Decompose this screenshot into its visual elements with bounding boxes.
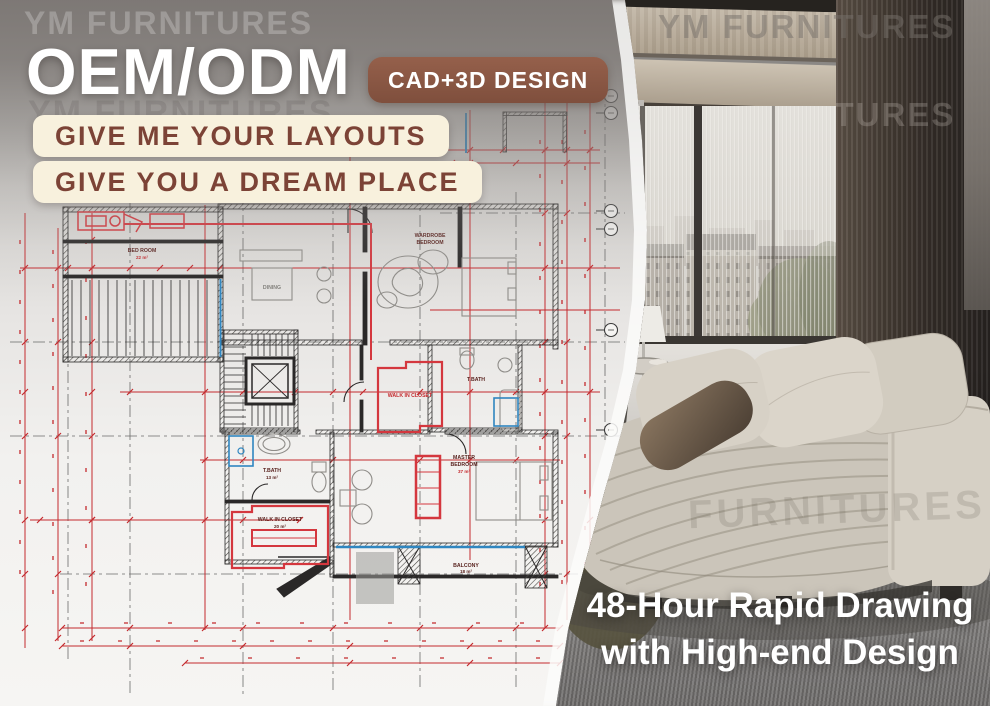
label-bedroom: BED ROOM: [128, 248, 157, 254]
tagline-layouts-pill: GIVE ME YOUR LAYOUTS: [33, 115, 449, 157]
caption-line-1: 48-Hour Rapid Drawing: [575, 582, 985, 629]
poster: BED ROOM 22 m² WARDROBE BEDROOM DINING W…: [0, 0, 990, 706]
label-dining: DINING: [263, 285, 281, 291]
label-bath-lower: T.BATH: [263, 468, 281, 474]
plan-smudge: [356, 552, 394, 604]
label-balcony-area: 18 m²: [460, 569, 472, 574]
label-wardrobe-2: BEDROOM: [416, 240, 443, 246]
caption: 48-Hour Rapid Drawing with High-end Desi…: [575, 582, 985, 676]
page-title: OEM/ODM: [26, 34, 351, 109]
label-closet-lower-area: 20 m²: [274, 524, 286, 529]
watermark-photo-top: YM FURNITURES: [658, 8, 955, 46]
label-closet-lower: WALK IN CLOSET: [258, 517, 303, 523]
label-master-1: MASTER: [453, 455, 475, 461]
label-bedroom-area: 22 m²: [136, 255, 148, 260]
label-bath-upper: T.BATH: [467, 377, 485, 383]
caption-line-2: with High-end Design: [575, 629, 985, 676]
label-bath-lower-area: 13 m²: [266, 475, 278, 480]
plan-wall-details: [72, 209, 547, 597]
label-closet-upper: WALK IN CLOSET: [388, 393, 433, 399]
plan-grid-bubbles: [596, 90, 618, 437]
tagline-dream-place-pill: GIVE YOU A DREAM PLACE: [33, 161, 482, 203]
label-wardrobe-1: WARDROBE: [415, 233, 446, 239]
label-master-area: 37 m²: [458, 469, 470, 474]
label-master-2: BEDROOM: [450, 462, 477, 468]
plan-furniture: [240, 250, 552, 524]
cad-3d-design-badge: CAD+3D DESIGN: [368, 57, 608, 103]
